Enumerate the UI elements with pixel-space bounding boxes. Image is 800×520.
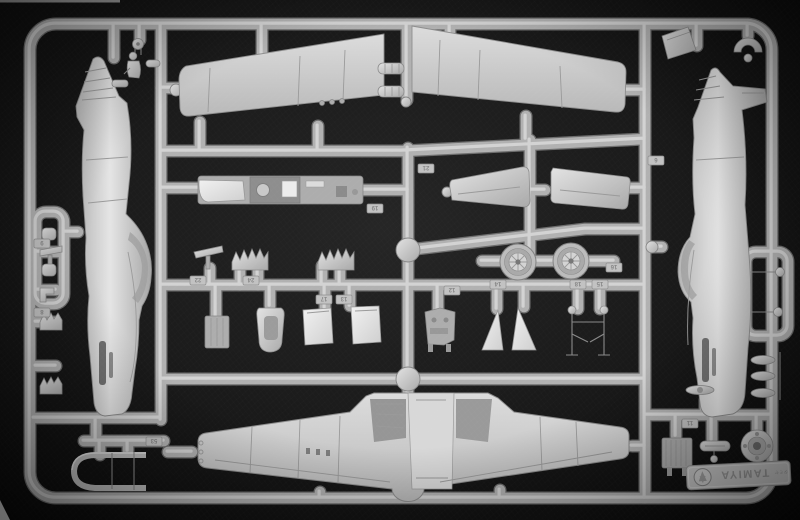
wing-center-belly [408,393,454,489]
pilot-figure [124,52,141,78]
landing-gear-struts [566,306,610,355]
engine-block-part [425,308,455,352]
cowl-panel-right [351,306,381,344]
part-number-tag: 19 [371,204,378,210]
wheel-well-left [370,399,406,442]
radiator-part [205,316,229,348]
corner-light-artifact [0,500,10,520]
cowl-panel-left [303,308,333,345]
part-number-tag: 18 [574,280,581,286]
part-number-tag: 14 [494,280,501,286]
wheel-hub-disc [741,430,773,462]
cockpit-floor-assembly [198,176,363,204]
exhaust-stack-left [232,249,268,270]
part-number-tag: 21 [422,164,429,170]
upper-wing-panel-right [412,26,626,112]
part-number-tag: 53 [150,437,157,443]
tailplane-left [450,167,530,207]
canopy-frame-part [72,452,146,490]
lower-wing-one-piece [198,393,629,501]
pilot-seat [257,308,284,352]
part-number-tag: 16 [610,263,617,269]
tailplane-right [551,168,630,209]
part-number-tag: 12 [448,286,455,292]
radio-deck [199,180,245,202]
sprue-photograph: TAMIYA タミヤ 16 24 13 17 22 14 19 12 18 15… [0,0,800,520]
gunsight-ring-part [734,38,762,62]
main-wheel-right [553,243,589,279]
upper-wing-panel-left [179,34,384,116]
exhaust-slot [99,341,106,385]
oval-panel-part [700,441,730,463]
propeller-blade-part [686,386,714,395]
fuselage-half-right [678,68,767,417]
part-number-tag: 22 [194,276,201,282]
part-number-tag: 24 [247,276,254,282]
wheel-well-right [456,399,492,442]
part-number-tag: 17 [320,295,327,301]
part-number-tag: 13 [340,295,347,301]
exhaust-stack-right [318,249,354,270]
gear-door-triangles [482,308,536,350]
part-number-tag: 11 [686,419,693,425]
main-wheel-left [500,244,536,280]
scan-edge-artifact [0,0,120,3]
antenna-mast [194,246,223,269]
tamiya-roundel-logo [694,468,712,486]
brand-plate: TAMIYA タミヤ [686,461,791,490]
exhaust-slot [702,338,709,382]
part-number-tag: 15 [596,280,603,286]
sprue-drawing: TAMIYA タミヤ 16 24 13 17 22 14 19 12 18 15… [0,0,800,520]
fuselage-half-left [76,57,152,416]
small-pin-part [146,60,160,67]
small-pin-part [112,80,128,87]
